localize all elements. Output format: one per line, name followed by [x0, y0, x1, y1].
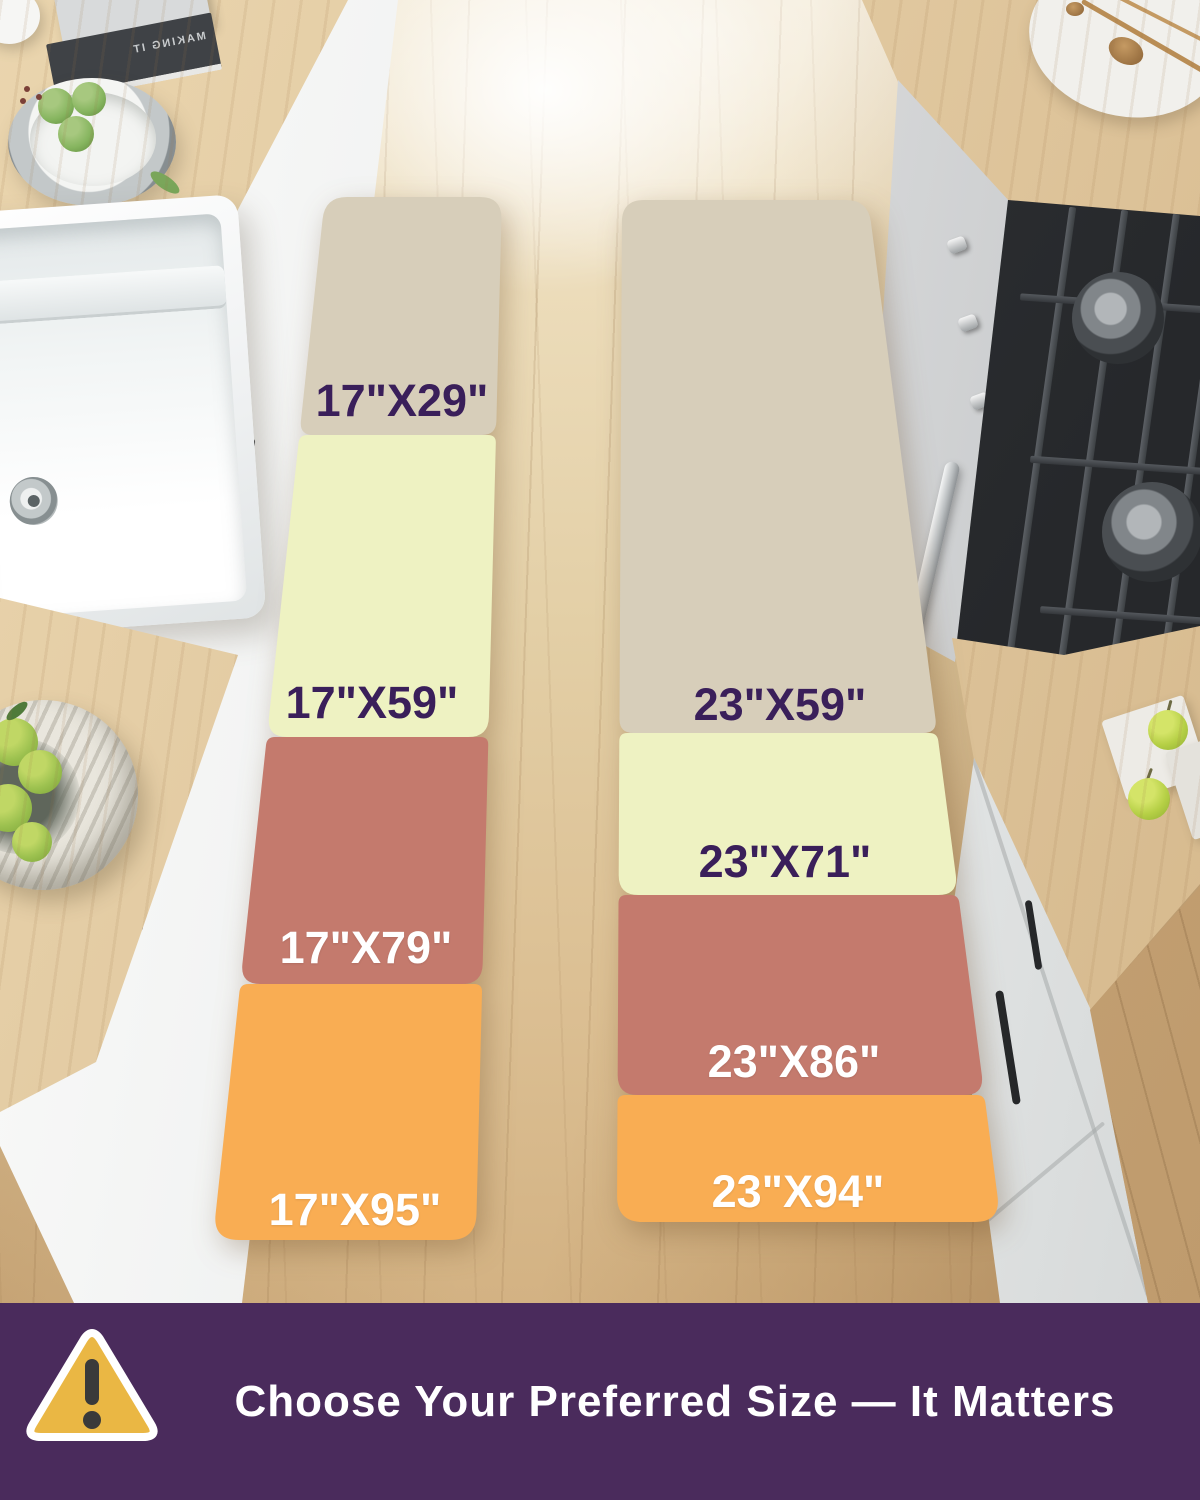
size-label-23x59: 23"X59" — [694, 679, 867, 731]
bottom-banner: Choose Your Preferred Size — It Matters — [0, 1303, 1200, 1500]
size-label-17x59: 17"X59" — [286, 677, 459, 729]
size-label-17x79: 17"X79" — [280, 922, 453, 974]
size-label-17x95: 17"X95" — [269, 1184, 442, 1236]
size-label-23x86: 23"X86" — [708, 1036, 881, 1088]
banner-headline: Choose Your Preferred Size — It Matters — [150, 1303, 1200, 1500]
rug-band-23x59 — [619, 200, 935, 733]
size-label-23x71: 23"X71" — [699, 836, 872, 888]
product-size-chart-image: MAKING IT — [0, 0, 1200, 1500]
rug-size-overlay — [0, 0, 1200, 1303]
kitchen-photo: MAKING IT — [0, 0, 1200, 1303]
size-label-23x94: 23"X94" — [712, 1166, 885, 1218]
warning-triangle-icon — [26, 1327, 158, 1447]
size-label-17x29: 17"X29" — [316, 375, 489, 427]
